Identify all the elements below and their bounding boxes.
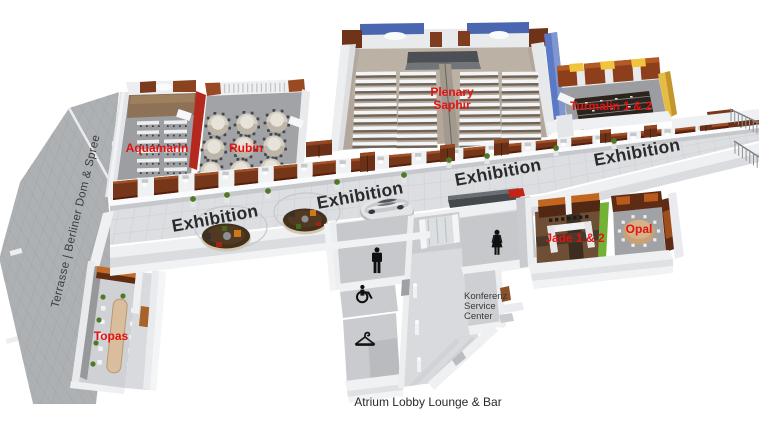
- svg-text:Opal: Opal: [626, 222, 653, 236]
- svg-text:Atrium Lobby Lounge & Bar: Atrium Lobby Lounge & Bar: [354, 395, 501, 409]
- svg-text:Center: Center: [464, 311, 493, 322]
- svg-text:Plenary: Plenary: [430, 85, 474, 99]
- svg-text:Saphir: Saphir: [433, 98, 471, 112]
- svg-text:Rubin: Rubin: [229, 141, 263, 155]
- svg-text:Jade 1 & 2: Jade 1 & 2: [545, 231, 605, 245]
- svg-text:Turmalin 1 & 2: Turmalin 1 & 2: [570, 99, 652, 113]
- svg-text:Aquamarin: Aquamarin: [126, 141, 189, 155]
- svg-text:Topas: Topas: [94, 329, 129, 343]
